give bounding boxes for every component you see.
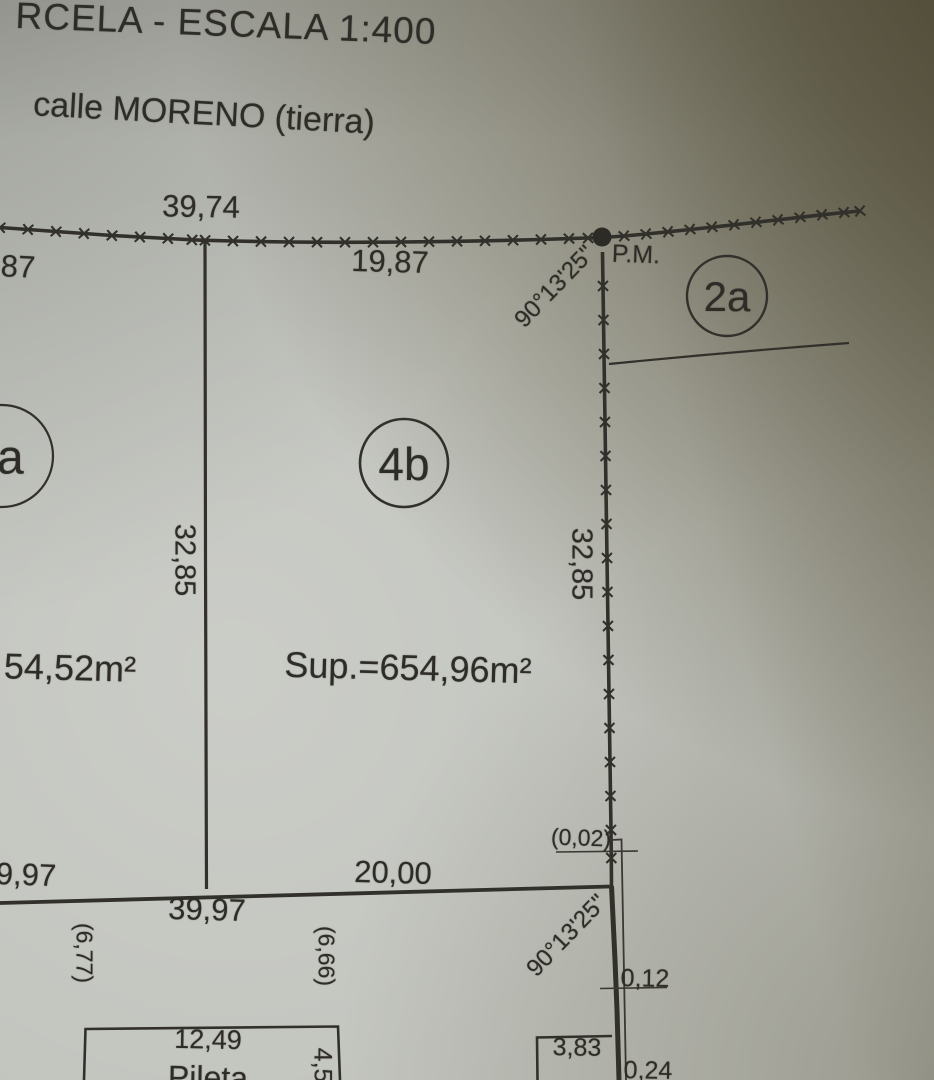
pool-label: Pileta <box>168 1059 249 1080</box>
boundary-line-right-lower <box>612 886 620 1080</box>
parcel-4a-label: 4a <box>0 431 24 486</box>
parcel-4b-label: 4b <box>378 437 429 491</box>
dim-top-right-segment: 19,87 <box>351 243 429 281</box>
dim-offset-left: (6,77) <box>71 923 98 983</box>
dim-offset-center: (6,66) <box>313 926 340 986</box>
boundary-line-right <box>603 252 612 886</box>
dim-small-right-1: 0,12 <box>620 964 669 994</box>
parcel-2a-line <box>609 343 849 364</box>
parcel-2a-label: 2a <box>704 273 751 321</box>
area-4a-partial: 54,52m² <box>3 645 136 690</box>
parcel-division-left <box>205 241 207 889</box>
dim-small-right-3: 0,24 <box>623 1056 672 1080</box>
pm-point-label: P.M. <box>611 240 660 271</box>
pool-depth: 4,50 <box>308 1048 337 1080</box>
dim-top-left-partial: 87 <box>0 248 36 286</box>
dim-offset-gap: (0,02) <box>551 823 612 852</box>
boundary-line-street <box>0 211 860 242</box>
dim-bottom-segment: 20,00 <box>354 854 432 892</box>
dim-right-side: 32,85 <box>565 528 598 601</box>
dim-left-side: 32,85 <box>168 524 201 597</box>
boundary-line-bottom <box>0 887 610 904</box>
pool-width: 12,49 <box>174 1024 242 1056</box>
dim-small-right-2: 3,83 <box>552 1033 601 1063</box>
dim-bottom-total: 39,97 <box>168 891 246 929</box>
area-4b: Sup.=654,96m² <box>284 644 532 692</box>
dim-top-total: 39,74 <box>162 188 240 225</box>
pm-point-marker <box>593 228 612 247</box>
survey-plan-photo: RCELA - ESCALA 1:400 calle MORENO (tierr… <box>0 0 934 1080</box>
plan-drawing <box>0 0 934 1080</box>
dim-bottom-left-partial: 9,97 <box>0 856 57 894</box>
